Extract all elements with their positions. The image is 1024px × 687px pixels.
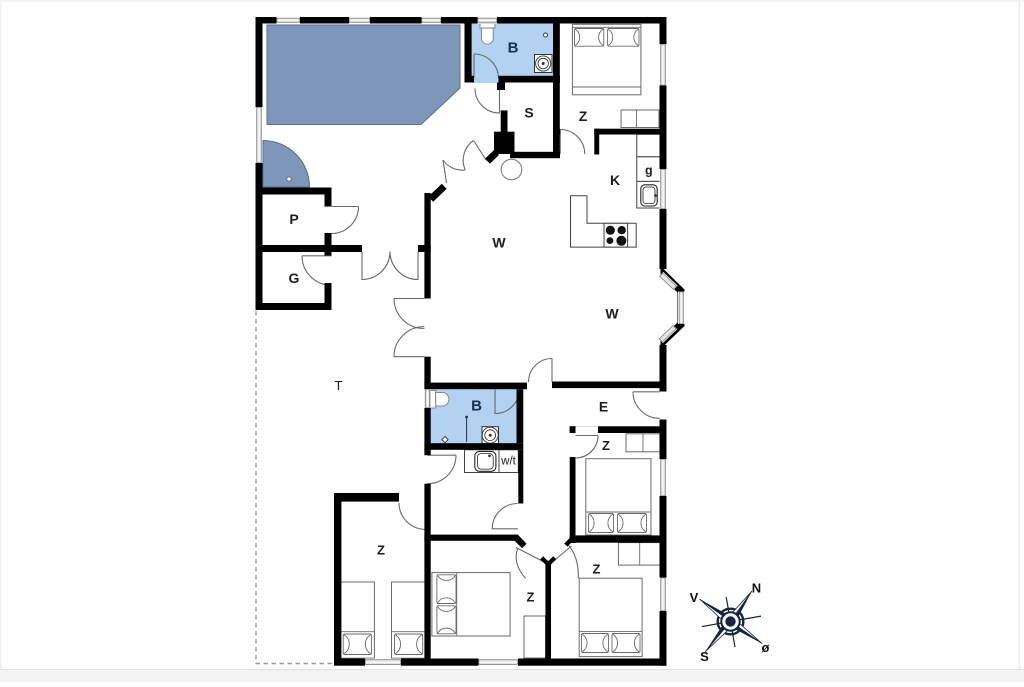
svg-text:g: g bbox=[645, 164, 653, 178]
svg-text:P: P bbox=[289, 211, 298, 227]
svg-text:Z: Z bbox=[579, 108, 588, 124]
svg-text:B: B bbox=[471, 398, 482, 415]
svg-text:K: K bbox=[610, 172, 620, 188]
svg-text:S: S bbox=[700, 649, 709, 664]
svg-text:w/t: w/t bbox=[500, 456, 517, 468]
svg-text:E: E bbox=[599, 399, 608, 415]
svg-text:G: G bbox=[289, 270, 300, 286]
svg-text:B: B bbox=[508, 40, 519, 57]
svg-text:W: W bbox=[605, 306, 619, 322]
svg-text:V: V bbox=[690, 590, 699, 605]
svg-text:Z: Z bbox=[593, 562, 601, 577]
svg-text:T: T bbox=[335, 378, 343, 393]
svg-text:ø: ø bbox=[762, 640, 770, 655]
svg-text:N: N bbox=[752, 581, 761, 596]
svg-text:Z: Z bbox=[377, 543, 385, 558]
svg-text:Z: Z bbox=[602, 438, 610, 453]
svg-text:S: S bbox=[524, 105, 533, 121]
svg-text:W: W bbox=[492, 235, 506, 251]
svg-text:Z: Z bbox=[527, 590, 535, 605]
